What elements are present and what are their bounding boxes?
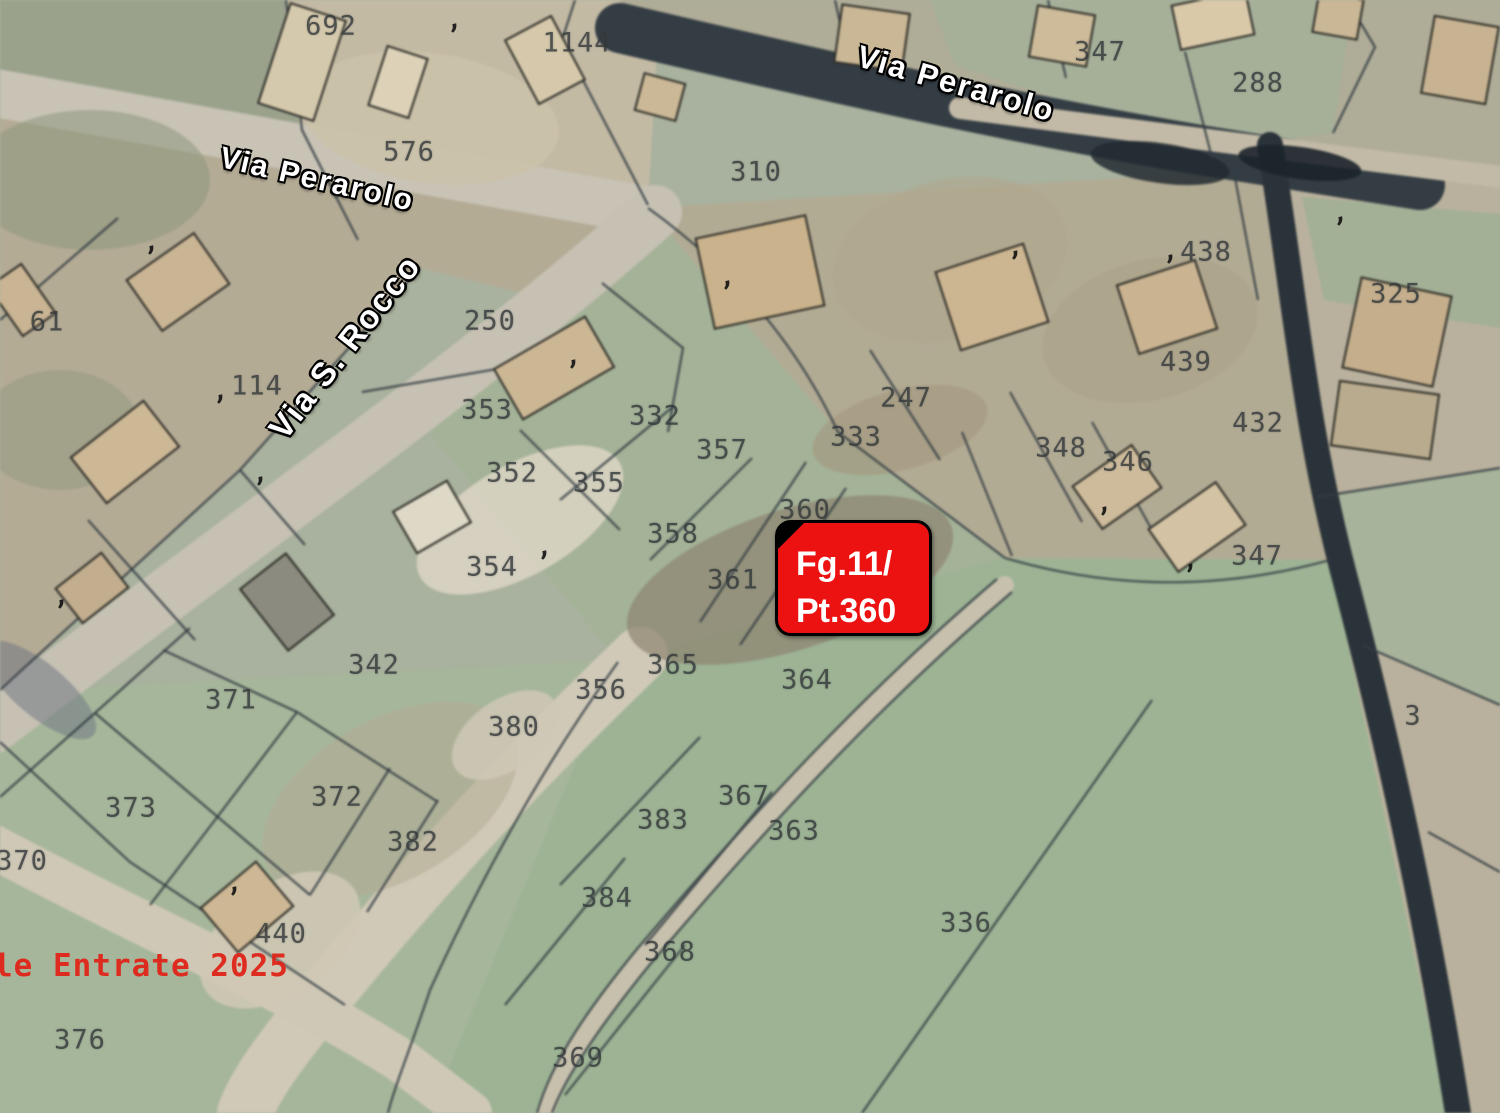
parcel-number-label: 348 [1035, 433, 1087, 464]
parcel-number-label: 373 [105, 793, 157, 824]
parcel-number-label: 372 [311, 782, 363, 813]
parcel-number-label: 369 [552, 1043, 604, 1074]
parcel-number-label: 310 [730, 157, 782, 188]
parcel-number-label: 357 [696, 435, 748, 466]
parcel-number-label: 336 [940, 908, 992, 939]
parcel-number-label: 352 [486, 458, 538, 489]
parcel-number-label: 247 [880, 383, 932, 414]
parcel-number-label: 383 [637, 805, 689, 836]
parcel-number-label: 250 [464, 306, 516, 337]
parcel-number-label: 61 [30, 307, 65, 338]
parcel-number-label: 439 [1160, 347, 1212, 378]
parcel-number-label: 355 [573, 468, 625, 499]
parcel-number-label: 333 [830, 422, 882, 453]
parcel-number-label: 371 [205, 685, 257, 716]
attribution-text: le Entrate 2025 [0, 948, 289, 984]
parcel-number-label: 353 [461, 395, 513, 426]
parcel-annotation-box: Fg.11/ Pt.360 [775, 520, 932, 636]
building-footprint [1331, 381, 1439, 459]
parcel-number-label: 363 [768, 816, 820, 847]
parcel-number-label: 432 [1232, 408, 1284, 439]
parcel-number-label: 365 [647, 650, 699, 681]
parcel-number-label: 438 [1180, 237, 1232, 268]
parcel-number-label: 364 [781, 665, 833, 696]
parcel-number-label: 370 [0, 846, 48, 877]
parcel-number-label: 380 [488, 712, 540, 743]
building-footprint [240, 553, 334, 650]
parcel-number-label: 354 [466, 552, 518, 583]
parcel-number-label: 3 [1404, 701, 1421, 732]
parcel-number-label: 347 [1231, 541, 1283, 572]
annotation-sheet-number: Fg.11/ [778, 541, 929, 588]
parcel-number-label: 325 [1370, 279, 1422, 310]
parcel-number-label: 440 [255, 919, 307, 950]
parcel-number-label: 367 [718, 781, 770, 812]
parcel-number-label: 368 [644, 937, 696, 968]
parcel-number-label: 1144 [542, 28, 611, 59]
parcel-number-label: 361 [707, 565, 759, 596]
parcel-number-label: 356 [575, 675, 627, 706]
parcel-number-label: 376 [54, 1025, 106, 1056]
parcel-number-label: 576 [383, 137, 435, 168]
parcel-number-label: 384 [581, 883, 633, 914]
building-footprint [1421, 16, 1499, 104]
parcel-number-label: 114 [231, 371, 283, 402]
parcel-number-label: 347 [1074, 37, 1126, 68]
parcel-number-label: 692 [305, 11, 357, 42]
parcel-number-label: 342 [348, 650, 400, 681]
annotation-parcel-number: Pt.360 [778, 588, 929, 635]
cadastral-map: 6921144347288576310438325612504391142473… [0, 0, 1500, 1113]
parcel-number-label: 382 [387, 827, 439, 858]
parcel-number-label: 332 [629, 401, 681, 432]
parcel-number-label: 346 [1102, 447, 1154, 478]
parcel-number-label: 358 [647, 519, 699, 550]
building-footprint [1312, 0, 1363, 40]
parcel-number-label: 288 [1232, 68, 1284, 99]
